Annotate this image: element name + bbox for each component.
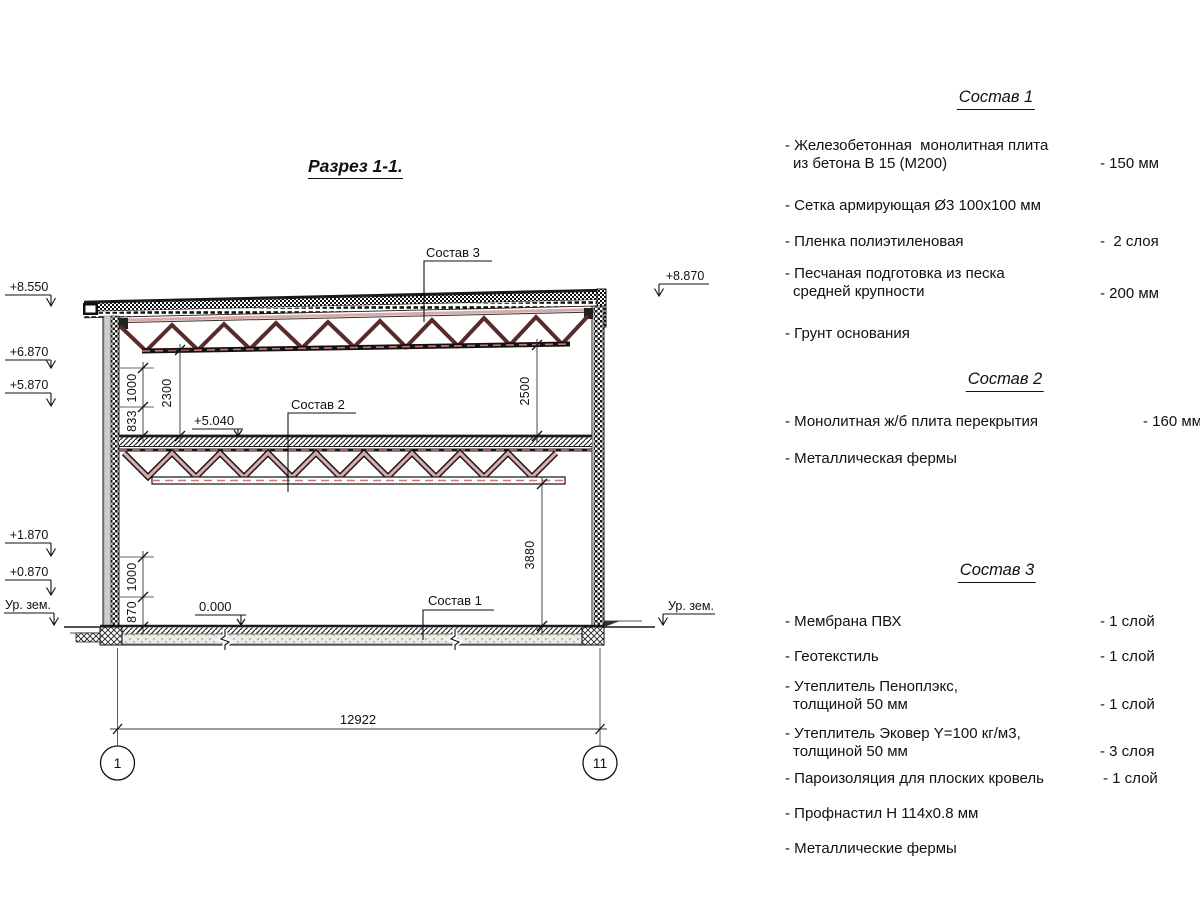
leader-label-sostav1: Состав 1 xyxy=(428,593,482,608)
spec-item-value: - 200 мм xyxy=(1100,285,1159,302)
spec-item: - Грунт основания xyxy=(785,325,1200,343)
spec-item: - Сетка армирующая Ø3 100х100 мм xyxy=(785,197,1200,215)
spec-item: - Мембрана ПВХ - 1 слой xyxy=(785,613,1200,631)
spec-item-value: - 160 мм xyxy=(1143,413,1200,430)
left-wall xyxy=(103,316,119,627)
level-label-5040: +5.040 xyxy=(194,413,234,428)
spec-item: - Железобетонная монолитная плита из бет… xyxy=(785,137,1200,173)
floor-truss xyxy=(119,450,592,484)
leader-label-sostav2: Состав 2 xyxy=(291,397,345,412)
spec-item-text: - Железобетонная монолитная плита xyxy=(785,137,1200,155)
spec-item: - Пленка полиэтиленовая - 2 слоя xyxy=(785,233,1200,251)
dim-833: 833 xyxy=(125,410,139,432)
grid-axis-11: 11 xyxy=(593,755,608,771)
spec-item: - Профнастил Н 114х0.8 мм xyxy=(785,805,1200,823)
elevation-label-0870: +0.870 xyxy=(5,565,53,579)
spec-heading-sostav3: Состав 3 xyxy=(958,561,1036,583)
spec-item-value: - 1 слой xyxy=(1100,613,1155,630)
ground-level-label-left: Ур. зем. xyxy=(2,598,54,612)
drawing-sheet: Разрез 1-1. +8.550 +6.870 +5.870 +1.870 … xyxy=(0,0,1200,900)
spec-heading-sostav1: Состав 1 xyxy=(957,88,1035,110)
elevation-label-1870: +1.870 xyxy=(5,528,53,542)
dim-1000-upper: 1000 xyxy=(125,373,139,402)
leader-label-sostav3: Состав 3 xyxy=(426,245,480,260)
floor-slab xyxy=(119,436,592,447)
spec-item-text: - Монолитная ж/б плита перекрытия xyxy=(785,413,1200,431)
spec-item-value: - 1 слой xyxy=(1100,648,1155,665)
ground-slab xyxy=(64,621,655,650)
dim-870: 870 xyxy=(125,601,139,623)
elevation-label-6870: +6.870 xyxy=(5,345,53,359)
right-wall xyxy=(592,306,604,627)
level-label-0000: 0.000 xyxy=(199,599,232,614)
spec-item: - Монолитная ж/б плита перекрытия - 160 … xyxy=(785,413,1200,431)
dim-3880: 3880 xyxy=(523,540,537,569)
spec-item: - Песчаная подготовка из песка средней к… xyxy=(785,265,1200,301)
spec-item-text: - Утеплитель Эковер Y=100 кг/м3, xyxy=(785,725,1200,743)
spec-item-value: - 150 мм xyxy=(1100,155,1159,172)
spec-item-text: - Грунт основания xyxy=(785,325,1200,343)
spec-item-text: - Утеплитель Пеноплэкс, xyxy=(785,678,1200,696)
elevation-label-8550: +8.550 xyxy=(5,280,53,294)
elevation-label-5870: +5.870 xyxy=(5,378,53,392)
dim-2300: 2300 xyxy=(160,378,174,407)
spec-item: - Утеплитель Пеноплэкс, толщиной 50 мм -… xyxy=(785,678,1200,714)
dim-1000-lower: 1000 xyxy=(125,562,139,591)
spec-item-value: - 1 слой xyxy=(1103,770,1158,787)
elevation-label-8870: +8.870 xyxy=(661,269,709,283)
spec-item-text: - Металлические фермы xyxy=(785,840,1200,858)
spec-item: - Металлическая фермы xyxy=(785,450,1200,468)
spec-heading-sostav2: Состав 2 xyxy=(966,370,1044,392)
spec-item-value: - 3 слоя xyxy=(1100,743,1155,760)
spec-item: - Пароизоляция для плоских кровель - 1 с… xyxy=(785,770,1200,788)
spec-item-value: - 2 слоя xyxy=(1100,233,1159,250)
dim-2500: 2500 xyxy=(518,376,532,405)
spec-item: - Геотекстиль - 1 слой xyxy=(785,648,1200,666)
dim-12922: 12922 xyxy=(340,712,376,727)
spec-item-text: - Металлическая фермы xyxy=(785,450,1200,468)
spec-item-text: - Профнастил Н 114х0.8 мм xyxy=(785,805,1200,823)
ground-level-label-right: Ур. зем. xyxy=(665,599,717,613)
spec-item-value: - 1 слой xyxy=(1100,696,1155,713)
grid-axis-1: 1 xyxy=(114,755,122,771)
drawing-title: Разрез 1-1. xyxy=(308,156,403,179)
spec-item: - Металлические фермы xyxy=(785,840,1200,858)
spec-item-text: - Сетка армирующая Ø3 100х100 мм xyxy=(785,197,1200,215)
spec-item: - Утеплитель Эковер Y=100 кг/м3, толщино… xyxy=(785,725,1200,761)
spec-item-text: - Песчаная подготовка из песка xyxy=(785,265,1200,283)
grid-bubbles xyxy=(101,746,618,780)
